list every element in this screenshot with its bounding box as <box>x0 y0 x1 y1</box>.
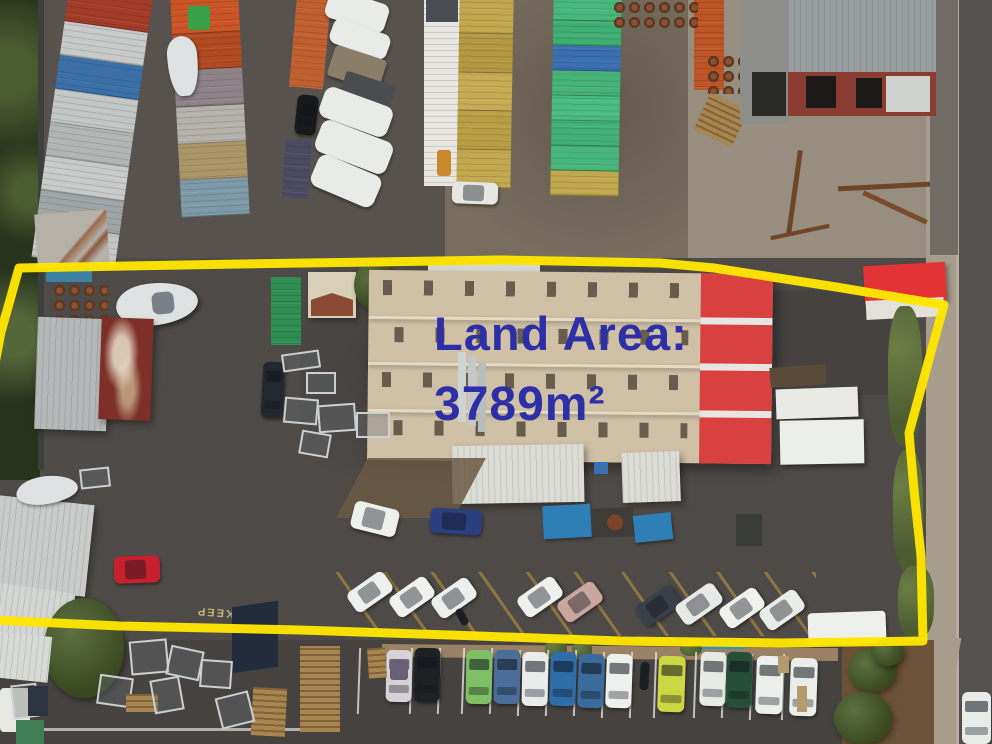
pallet-1 <box>251 687 287 737</box>
street-car-3 <box>466 650 493 704</box>
green-machine <box>188 6 210 30</box>
truck-cab <box>426 0 458 22</box>
blue-bin-trailer-2 <box>633 512 674 543</box>
container <box>459 0 514 35</box>
frame-bl-5 <box>149 676 184 715</box>
street-car-4 <box>494 650 521 704</box>
metal-stock <box>306 372 336 394</box>
red-hatchback <box>114 555 161 584</box>
container <box>552 95 620 121</box>
silver-building <box>0 495 95 597</box>
blue-bin-trailer-1 <box>542 504 592 539</box>
container <box>551 145 619 171</box>
purple-container <box>282 139 312 199</box>
brick-doorway-1 <box>806 76 836 108</box>
pallet-3 <box>367 647 387 678</box>
container-stack-left <box>170 0 249 218</box>
weeds-right-3 <box>898 566 934 638</box>
green-container-yard <box>271 277 301 345</box>
brick-doorway-2 <box>856 78 882 108</box>
land-area-label: Land Area: <box>434 310 688 357</box>
green-bin <box>16 720 44 744</box>
street-car-5 <box>522 652 549 706</box>
rust-coils-top-2 <box>706 54 740 94</box>
skylight-row <box>383 280 689 298</box>
warehouse-red-section <box>699 273 773 464</box>
block-wall-opening <box>752 72 786 116</box>
metal-stock <box>283 397 319 426</box>
red-white-band <box>700 363 772 371</box>
kerb-shrub-3 <box>680 638 702 656</box>
white-ute-top <box>452 181 499 205</box>
dark-bin <box>736 514 762 546</box>
street-car-10 <box>699 652 727 707</box>
aerial-photo: KEEP <box>0 0 992 744</box>
container <box>457 111 512 150</box>
street-car-11 <box>725 652 753 709</box>
street-car-7 <box>577 654 605 709</box>
weeds-right-2 <box>893 450 923 570</box>
container <box>551 120 619 146</box>
metal-stock <box>298 430 332 459</box>
metal-stock <box>356 412 390 438</box>
street-car-8 <box>605 654 633 709</box>
forklift <box>437 150 451 176</box>
land-area-annotation: Land Area: 3789m² <box>434 310 688 429</box>
weeds-right-1 <box>888 306 922 446</box>
boat-windshield <box>151 291 175 315</box>
blue-sedan <box>429 507 483 536</box>
container <box>178 141 248 181</box>
navy-tarp <box>232 601 278 673</box>
keep-ground-text: KEEP <box>196 605 235 620</box>
blue-tarp <box>46 271 92 282</box>
tan-post-2 <box>797 686 807 712</box>
rusty-shed-topleft <box>34 210 110 269</box>
brick-building-roof <box>788 0 936 76</box>
container <box>180 177 250 217</box>
container <box>550 170 618 196</box>
motorcycle-street <box>639 662 649 690</box>
tan-post <box>778 656 789 673</box>
frame-bl-6 <box>199 659 233 689</box>
shrub-bottomright-3 <box>872 638 904 666</box>
flatbed-trailer <box>769 364 826 388</box>
container <box>458 34 513 73</box>
red-white-band <box>700 317 772 325</box>
shrub-bottomright-2 <box>834 692 892 744</box>
navy-wagon <box>261 361 286 418</box>
metal-stock <box>317 403 357 434</box>
red-building <box>98 317 154 421</box>
road-right <box>958 0 992 744</box>
pallet-2 <box>300 646 340 732</box>
container <box>552 70 620 96</box>
red-white-band <box>699 410 771 418</box>
black-car-top <box>294 94 319 136</box>
rust-coils-top <box>612 0 698 30</box>
dark-trailer-rust <box>592 507 635 537</box>
purple-tarp-roof <box>390 660 408 680</box>
street-car-2 <box>414 648 441 702</box>
container-row-yellow <box>456 0 513 188</box>
frame-bl-3 <box>129 638 170 675</box>
street-car-6 <box>549 652 577 707</box>
white-canopy-2 <box>621 451 681 503</box>
container <box>552 45 620 71</box>
navy-bins <box>28 686 48 716</box>
white-van-right <box>807 611 886 646</box>
white-truck-box-2 <box>780 419 865 464</box>
street-car-9 <box>657 656 686 713</box>
white-building-corner <box>0 631 52 683</box>
trailer-small <box>79 466 111 489</box>
brick-whitesection <box>886 76 930 112</box>
white-truck-box-1 <box>776 387 859 420</box>
land-area-value: 3789m² <box>434 381 688 429</box>
container <box>176 104 246 144</box>
blue-equipment <box>594 462 608 474</box>
container <box>458 72 513 111</box>
white-car-road <box>962 692 991 744</box>
